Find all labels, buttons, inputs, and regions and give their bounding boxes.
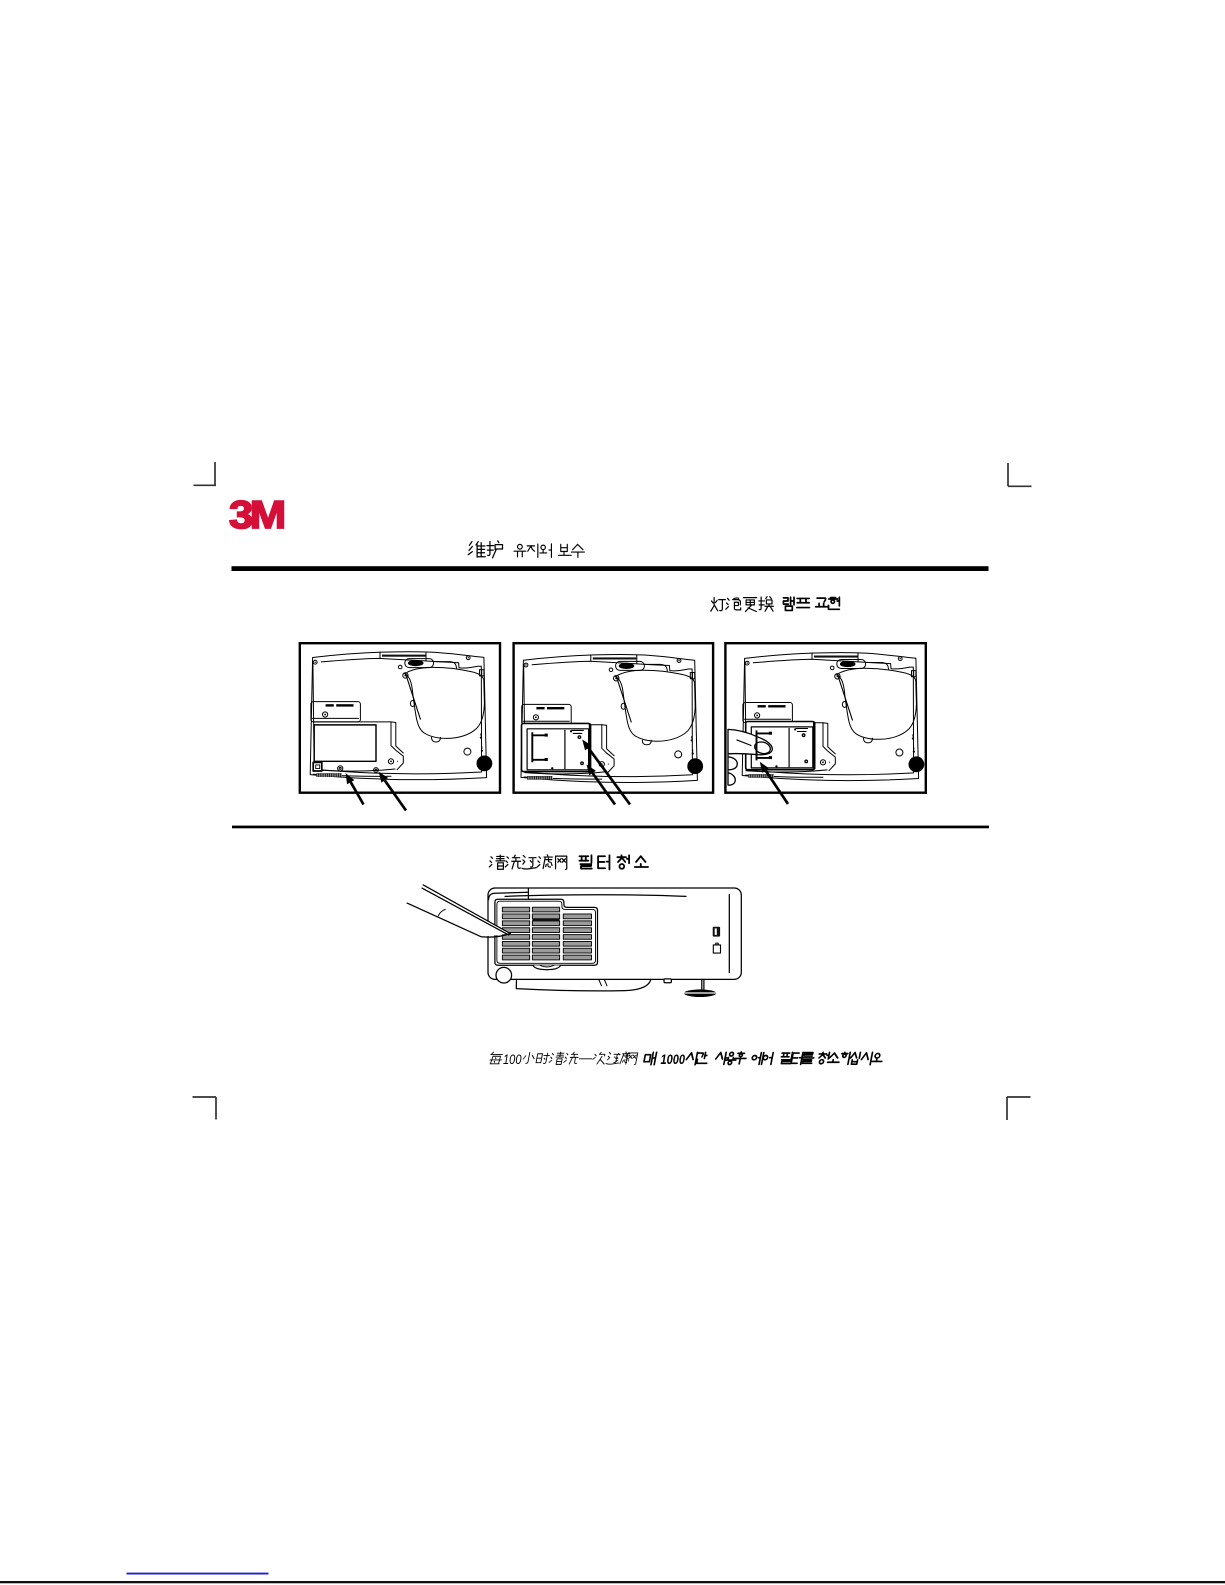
svg-text:1000: 1000: [661, 1052, 686, 1067]
svg-text:100: 100: [503, 1052, 522, 1067]
svg-text:3M: 3M: [229, 494, 284, 537]
